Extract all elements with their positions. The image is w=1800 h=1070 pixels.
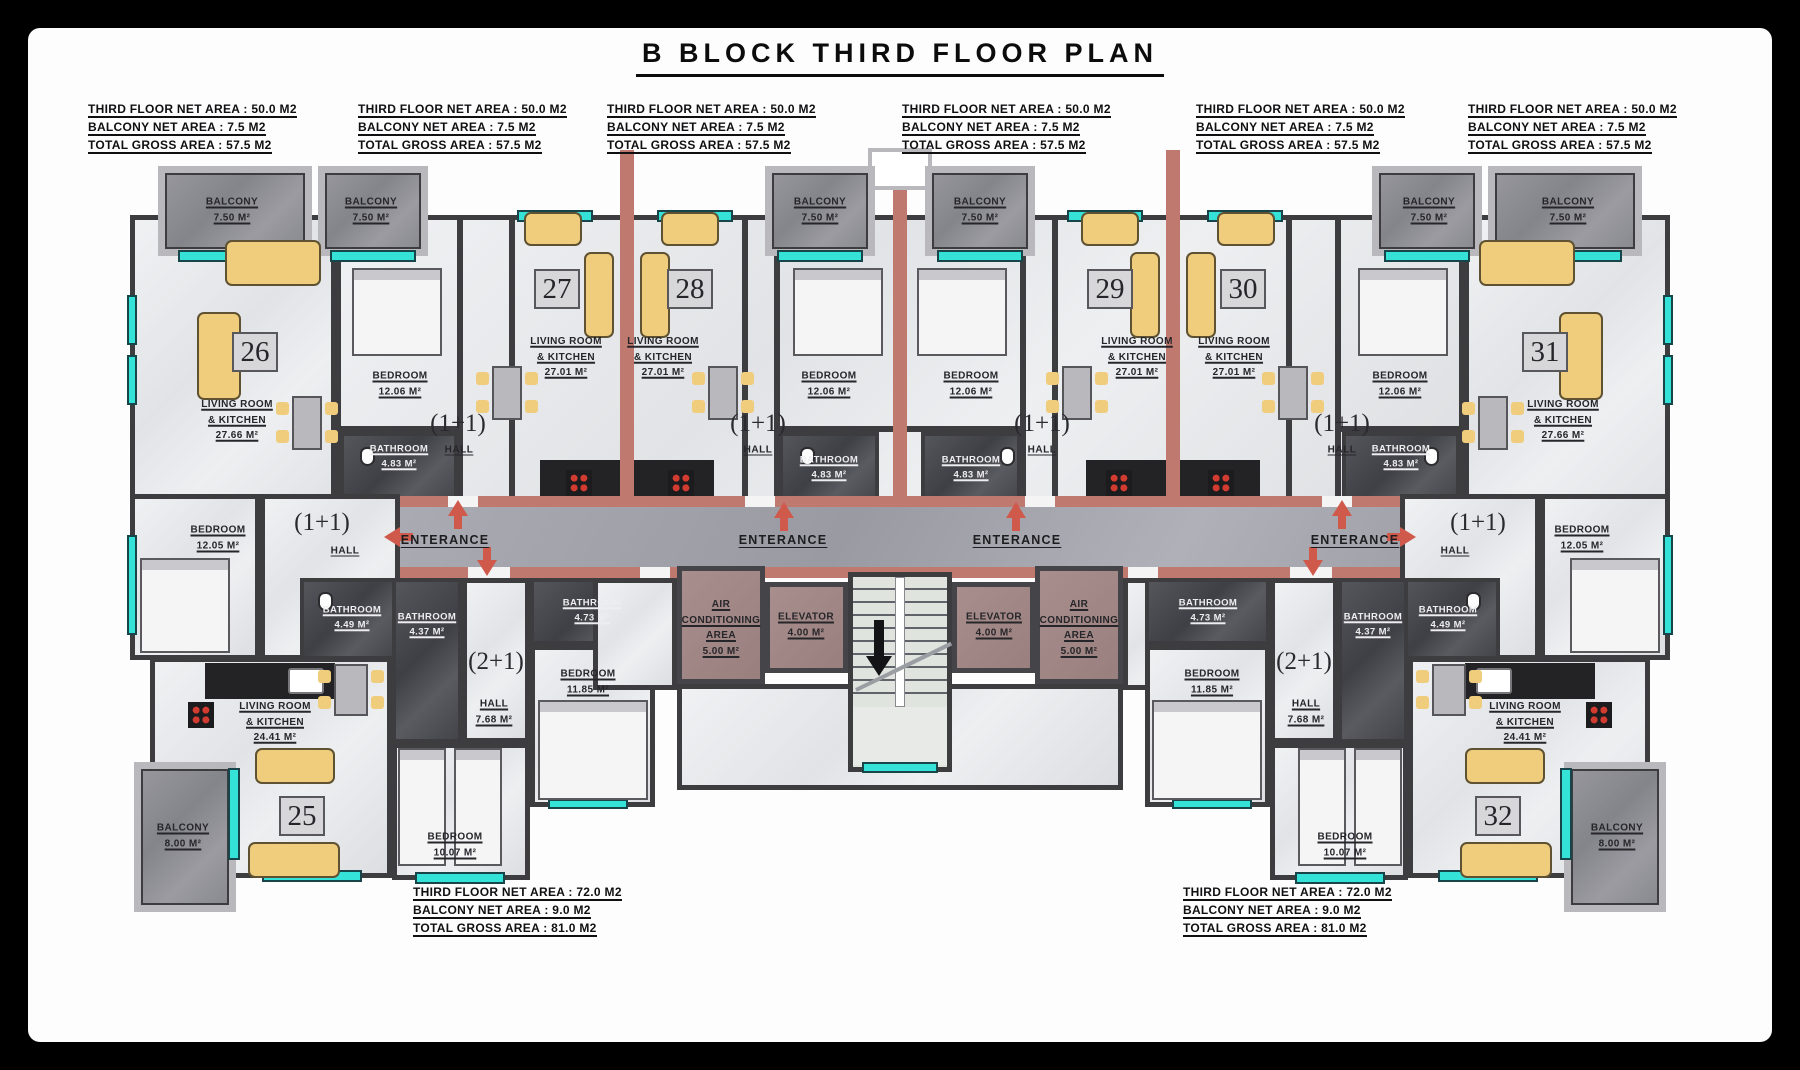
room-area: 11.85 M²: [560, 682, 615, 698]
room-name: BATHROOM: [1419, 603, 1477, 618]
sofa: [1479, 240, 1575, 286]
dining-table: [334, 664, 368, 716]
room-name: BATHROOM: [942, 453, 1000, 468]
room-area: 4.37 M²: [1344, 625, 1402, 640]
room-area: 4.83 M²: [370, 457, 428, 472]
gross-area: TOTAL GROSS AREA : 57.5 M2: [902, 139, 1086, 154]
dining-table: [1478, 396, 1508, 450]
room-name: BEDROOM: [560, 667, 615, 683]
door-gap: [640, 567, 670, 578]
bed: [793, 268, 883, 356]
stove-icon: [668, 470, 694, 496]
bedroom-label: BEDROOM12.05 M²: [190, 523, 245, 554]
window: [548, 799, 628, 809]
area-info-block: THIRD FLOOR NET AREA : 50.0 M2BALCONY NE…: [1468, 103, 1677, 157]
l2: & KITCHEN: [1527, 412, 1599, 428]
apartment-number-25: 25: [279, 796, 325, 836]
plan-stage: BALCONY7.50 M² BALCONY7.50 M² BALCONY7.5…: [0, 0, 1800, 1070]
l2: CONDITIONING: [1040, 613, 1119, 629]
room-area: 12.05 M²: [190, 538, 245, 554]
stove-icon: [1208, 470, 1234, 496]
area: 5.00 M²: [1040, 644, 1119, 660]
stove-icon: [1106, 470, 1132, 496]
bathroom-label: BATHROOM4.49 M²: [323, 603, 381, 632]
unit-type-label: (2+1): [468, 648, 524, 676]
bathroom-label: BATHROOM4.83 M²: [370, 442, 428, 471]
hall-label: HALL: [1328, 445, 1357, 456]
area-info-block: THIRD FLOOR NET AREA : 50.0 M2BALCONY NE…: [1196, 103, 1405, 157]
window: [1384, 250, 1470, 262]
balcony-label: BALCONY8.00 M²: [1591, 821, 1643, 852]
l1: LIVING ROOM: [201, 397, 273, 413]
bathroom-label: BATHROOM4.73 M²: [563, 596, 621, 625]
room-name: BATHROOM: [1179, 596, 1237, 611]
window: [1295, 872, 1385, 884]
stove-icon: [188, 702, 214, 728]
net-area: THIRD FLOOR NET AREA : 72.0 M2: [1183, 886, 1392, 901]
room-name: ELEVATOR: [778, 610, 834, 626]
apartment-number-26: 26: [232, 332, 278, 372]
hall-label: HALL: [744, 445, 773, 456]
l1: LIVING ROOM: [1527, 397, 1599, 413]
air-conditioning-label: AIRCONDITIONINGAREA5.00 M²: [682, 597, 761, 659]
l2: & KITCHEN: [530, 349, 602, 365]
l2: CONDITIONING: [682, 613, 761, 629]
l1: LIVING ROOM: [530, 334, 602, 350]
room-name: BEDROOM: [427, 830, 482, 846]
living-room-label: LIVING ROOM& KITCHEN27.01 M²: [530, 334, 602, 381]
bedroom-label: BEDROOM11.85 M²: [560, 667, 615, 698]
room-area: 12.06 M²: [1372, 384, 1427, 400]
hall-label: HALL7.68 M²: [476, 697, 513, 728]
sofa: [225, 240, 321, 286]
entrance-arrow-up-icon: [774, 501, 794, 531]
bathroom-label: BATHROOM4.49 M²: [1419, 603, 1477, 632]
chairs: [1046, 372, 1059, 385]
l2: & KITCHEN: [201, 412, 273, 428]
room-name: BEDROOM: [1317, 830, 1372, 846]
sofa: [640, 252, 670, 338]
balcony-label: BALCONY7.50 M²: [954, 195, 1006, 226]
window: [777, 250, 863, 262]
l2: & KITCHEN: [627, 349, 699, 365]
room-area: 12.06 M²: [943, 384, 998, 400]
gross-area: TOTAL GROSS AREA : 57.5 M2: [1196, 139, 1380, 154]
net-area: THIRD FLOOR NET AREA : 50.0 M2: [902, 103, 1111, 118]
gross-area: TOTAL GROSS AREA : 81.0 M2: [1183, 922, 1367, 937]
window: [330, 250, 416, 262]
apartment-number-29: 29: [1087, 269, 1133, 309]
party-wall: [620, 150, 634, 508]
unit-type-label: (1+1): [1014, 410, 1070, 438]
chairs: [276, 402, 289, 415]
balcony-area: BALCONY NET AREA : 9.0 M2: [413, 904, 591, 919]
bed: [538, 700, 648, 800]
sofa: [1130, 252, 1160, 338]
net-area: THIRD FLOOR NET AREA : 50.0 M2: [358, 103, 567, 118]
corridor-wall-top: [345, 496, 1455, 507]
l3: AREA: [1040, 628, 1119, 644]
enterance-label: ENTERANCE: [739, 533, 828, 547]
window: [127, 535, 137, 635]
bathroom1-apt32: [1338, 578, 1408, 743]
area-info-block: THIRD FLOOR NET AREA : 50.0 M2BALCONY NE…: [88, 103, 297, 157]
bedroom-label: BEDROOM12.06 M²: [943, 369, 998, 400]
balcony-label: BALCONY8.00 M²: [157, 821, 209, 852]
area-info-block: THIRD FLOOR NET AREA : 50.0 M2BALCONY NE…: [358, 103, 567, 157]
chairs: [476, 372, 489, 385]
unit-type-label: (1+1): [1314, 410, 1370, 438]
room-area: 4.83 M²: [942, 468, 1000, 483]
dining-table: [1432, 664, 1466, 716]
dining-table: [292, 396, 322, 450]
chairs: [318, 670, 331, 683]
l1: LIVING ROOM: [239, 699, 311, 715]
entrance-arrow-up-icon: [1332, 499, 1352, 529]
toilet-icon: [1000, 447, 1015, 466]
gross-area: TOTAL GROSS AREA : 57.5 M2: [1468, 139, 1652, 154]
bathroom-label: BATHROOM4.83 M²: [942, 453, 1000, 482]
room-name: BALCONY: [1591, 821, 1643, 837]
gross-area: TOTAL GROSS AREA : 57.5 M2: [607, 139, 791, 154]
bed: [1152, 700, 1262, 800]
area: 27.01 M²: [627, 365, 699, 381]
gross-area: TOTAL GROSS AREA : 57.5 M2: [88, 139, 272, 154]
sofa: [1460, 842, 1552, 878]
stair-rail: [895, 577, 905, 707]
entrance-arrow-down-icon: [477, 547, 497, 577]
bedroom-label: BEDROOM12.05 M²: [1554, 523, 1609, 554]
area: 5.00 M²: [682, 644, 761, 660]
bed: [140, 558, 230, 653]
area-info-block: THIRD FLOOR NET AREA : 50.0 M2BALCONY NE…: [607, 103, 816, 157]
room-name: BATHROOM: [800, 453, 858, 468]
apartment-number-27: 27: [534, 269, 580, 309]
l1: LIVING ROOM: [1489, 699, 1561, 715]
bedroom-label: BEDROOM10.07 M²: [1317, 830, 1372, 861]
window: [228, 768, 240, 860]
room-name: BEDROOM: [372, 369, 427, 385]
apartment-number-32: 32: [1475, 796, 1521, 836]
wall: [1286, 215, 1292, 508]
sofa: [1465, 748, 1545, 784]
l2: & KITCHEN: [1101, 349, 1173, 365]
entrance-arrow-down-icon: [1303, 547, 1323, 577]
room-area: 7.50 M²: [206, 210, 258, 226]
bathroom-label: BATHROOM4.73 M²: [1179, 596, 1237, 625]
room-area: 7.50 M²: [1403, 210, 1455, 226]
room-name: HALL: [476, 697, 513, 713]
chairs: [1462, 402, 1475, 415]
l3: AREA: [682, 628, 761, 644]
hall-label: HALL7.68 M²: [1288, 697, 1325, 728]
bedroom-label: BEDROOM12.06 M²: [1372, 369, 1427, 400]
window: [127, 295, 137, 345]
living-room-label: LIVING ROOM& KITCHEN27.01 M²: [1101, 334, 1173, 381]
l1: LIVING ROOM: [1198, 334, 1270, 350]
bedroom-label: BEDROOM12.06 M²: [801, 369, 856, 400]
bed: [917, 268, 1007, 356]
room-name: BALCONY: [1542, 195, 1594, 211]
room-area: 7.68 M²: [1288, 712, 1325, 728]
room-area: 4.49 M²: [1419, 618, 1477, 633]
room-area: 12.06 M²: [372, 384, 427, 400]
room-name: BALCONY: [206, 195, 258, 211]
apartment-number-31: 31: [1522, 332, 1568, 372]
room-name: BATHROOM: [323, 603, 381, 618]
area-info-block: THIRD FLOOR NET AREA : 72.0 M2BALCONY NE…: [413, 886, 622, 940]
living-room-label: LIVING ROOM& KITCHEN27.66 M²: [1527, 397, 1599, 444]
room-area: 7.50 M²: [794, 210, 846, 226]
net-area: THIRD FLOOR NET AREA : 72.0 M2: [413, 886, 622, 901]
room-name: BATHROOM: [398, 610, 456, 625]
bathroom1-apt25: [392, 578, 462, 743]
entrance-arrow-up-icon: [1006, 501, 1026, 531]
room-area: 4.83 M²: [800, 468, 858, 483]
balcony-label: BALCONY7.50 M²: [1542, 195, 1594, 226]
net-area: THIRD FLOOR NET AREA : 50.0 M2: [1468, 103, 1677, 118]
net-area: THIRD FLOOR NET AREA : 50.0 M2: [88, 103, 297, 118]
window: [1663, 355, 1673, 405]
corridor: [345, 505, 1455, 569]
party-wall: [1166, 150, 1180, 508]
room-area: 4.73 M²: [563, 611, 621, 626]
room-name: BALCONY: [1403, 195, 1455, 211]
area: 27.01 M²: [1198, 365, 1270, 381]
area: 27.66 M²: [201, 428, 273, 444]
room-name: BEDROOM: [190, 523, 245, 539]
balcony-area: BALCONY NET AREA : 7.5 M2: [902, 121, 1080, 136]
balcony-area: BALCONY NET AREA : 7.5 M2: [1468, 121, 1646, 136]
l2: & KITCHEN: [1198, 349, 1270, 365]
room-area: 7.68 M²: [476, 712, 513, 728]
window: [415, 872, 505, 884]
door-gap: [1128, 567, 1158, 578]
unit-type-label: (1+1): [430, 410, 486, 438]
door-gap: [1025, 496, 1055, 507]
room-name: BALCONY: [794, 195, 846, 211]
room-area: 8.00 M²: [1591, 836, 1643, 852]
room-name: BALCONY: [954, 195, 1006, 211]
sofa: [661, 212, 719, 246]
window: [1172, 799, 1252, 809]
l2: & KITCHEN: [1489, 714, 1561, 730]
room-area: 7.50 M²: [954, 210, 1006, 226]
chairs: [1416, 670, 1429, 683]
room-name: BEDROOM: [943, 369, 998, 385]
room-name: BEDROOM: [1372, 369, 1427, 385]
room-area: 4.49 M²: [323, 618, 381, 633]
balcony-area: BALCONY NET AREA : 7.5 M2: [1196, 121, 1374, 136]
unit-type-label: (1+1): [294, 509, 350, 537]
balcony-label: BALCONY7.50 M²: [1403, 195, 1455, 226]
room-area: 4.37 M²: [398, 625, 456, 640]
balcony-area: BALCONY NET AREA : 7.5 M2: [88, 121, 266, 136]
gross-area: TOTAL GROSS AREA : 81.0 M2: [413, 922, 597, 937]
balcony-label: BALCONY7.50 M²: [345, 195, 397, 226]
bed: [1570, 558, 1660, 653]
balcony-area: BALCONY NET AREA : 7.5 M2: [607, 121, 785, 136]
page-title: B BLOCK THIRD FLOOR PLAN: [636, 38, 1164, 77]
room-name: ELEVATOR: [966, 610, 1022, 626]
room-area: 12.06 M²: [801, 384, 856, 400]
wall: [1335, 215, 1341, 508]
bed: [352, 268, 442, 356]
dining-table: [492, 366, 522, 420]
bed: [1358, 268, 1448, 356]
l1: AIR: [1040, 597, 1119, 613]
room-area: 8.00 M²: [157, 836, 209, 852]
net-area: THIRD FLOOR NET AREA : 50.0 M2: [607, 103, 816, 118]
living-room-label: LIVING ROOM& KITCHEN24.41 M²: [1489, 699, 1561, 746]
balcony-area: BALCONY NET AREA : 9.0 M2: [1183, 904, 1361, 919]
room-area: 4.73 M²: [1179, 611, 1237, 626]
balcony-label: BALCONY7.50 M²: [206, 195, 258, 226]
area: 24.41 M²: [239, 730, 311, 746]
room-name: BATHROOM: [1372, 442, 1430, 457]
room-name: BALCONY: [157, 821, 209, 837]
living-room-label: LIVING ROOM& KITCHEN24.41 M²: [239, 699, 311, 746]
bathroom-label: BATHROOM4.37 M²: [398, 610, 456, 639]
area: 27.01 M²: [1101, 365, 1173, 381]
l1: AIR: [682, 597, 761, 613]
sofa: [524, 212, 582, 246]
balcony-area: BALCONY NET AREA : 7.5 M2: [358, 121, 536, 136]
bedroom-label: BEDROOM12.06 M²: [372, 369, 427, 400]
sofa: [255, 748, 335, 784]
room-area: 4.83 M²: [1372, 457, 1430, 472]
air-conditioning-label: AIRCONDITIONINGAREA5.00 M²: [1040, 597, 1119, 659]
room-name: HALL: [1288, 697, 1325, 713]
unit-type-label: (2+1): [1276, 648, 1332, 676]
area-info-block: THIRD FLOOR NET AREA : 50.0 M2BALCONY NE…: [902, 103, 1111, 157]
area: 24.41 M²: [1489, 730, 1561, 746]
stove-icon: [1586, 702, 1612, 728]
window: [1560, 768, 1572, 860]
sofa: [248, 842, 340, 878]
room-area: 10.07 M²: [1317, 845, 1372, 861]
room-name: BATHROOM: [1344, 610, 1402, 625]
bathroom-label: BATHROOM4.83 M²: [1372, 442, 1430, 471]
window: [127, 355, 137, 405]
room-name: BALCONY: [345, 195, 397, 211]
living-room-label: LIVING ROOM& KITCHEN27.01 M²: [1198, 334, 1270, 381]
elevator-label: ELEVATOR4.00 M²: [966, 610, 1022, 641]
hall-label: HALL: [1028, 445, 1057, 456]
room-area: 7.50 M²: [1542, 210, 1594, 226]
l1: LIVING ROOM: [1101, 334, 1173, 350]
hall-label: HALL: [445, 445, 474, 456]
bathroom-label: BATHROOM4.83 M²: [800, 453, 858, 482]
hall-label: HALL: [1441, 546, 1470, 557]
room-name: BEDROOM: [801, 369, 856, 385]
hall-label: HALL: [331, 546, 360, 557]
enterance-label: ENTERANCE: [401, 533, 490, 547]
wall: [509, 215, 515, 508]
sofa: [1186, 252, 1216, 338]
bedroom-label: BEDROOM10.07 M²: [427, 830, 482, 861]
room-area: 4.00 M²: [966, 625, 1022, 641]
room-area: 7.50 M²: [345, 210, 397, 226]
window: [937, 250, 1023, 262]
unit-type-label: (1+1): [1450, 509, 1506, 537]
stairs-down-arrow-icon: [866, 620, 892, 678]
entrance-arrow-up-icon: [448, 499, 468, 529]
apartment-number-30: 30: [1220, 269, 1266, 309]
room-name: BEDROOM: [1554, 523, 1609, 539]
sofa: [584, 252, 614, 338]
stair-landing: [853, 707, 947, 765]
wall: [742, 215, 748, 508]
area: 27.66 M²: [1527, 428, 1599, 444]
l2: & KITCHEN: [239, 714, 311, 730]
balcony-label: BALCONY7.50 M²: [794, 195, 846, 226]
elevator-label: ELEVATOR4.00 M²: [778, 610, 834, 641]
sofa: [1217, 212, 1275, 246]
living-room-label: LIVING ROOM& KITCHEN27.66 M²: [201, 397, 273, 444]
window: [1663, 295, 1673, 345]
room-area: 10.07 M²: [427, 845, 482, 861]
sink-icon: [1476, 668, 1512, 694]
living-room-label: LIVING ROOM& KITCHEN27.01 M²: [627, 334, 699, 381]
apartment-number-28: 28: [667, 269, 713, 309]
room-name: BEDROOM: [1184, 667, 1239, 683]
party-wall-center: [893, 186, 907, 508]
gross-area: TOTAL GROSS AREA : 57.5 M2: [358, 139, 542, 154]
unit-type-label: (1+1): [730, 410, 786, 438]
door-gap: [745, 496, 775, 507]
bedroom-label: BEDROOM11.85 M²: [1184, 667, 1239, 698]
room-area: 4.00 M²: [778, 625, 834, 641]
dining-table: [1278, 366, 1308, 420]
enterance-label: ENTERANCE: [1311, 533, 1400, 547]
room-area: 11.85 M²: [1184, 682, 1239, 698]
room-area: 12.05 M²: [1554, 538, 1609, 554]
room-name: BATHROOM: [370, 442, 428, 457]
window: [1663, 535, 1673, 635]
window: [862, 762, 938, 773]
l1: LIVING ROOM: [627, 334, 699, 350]
wall: [1052, 215, 1058, 508]
room-name: BATHROOM: [563, 596, 621, 611]
area-info-block: THIRD FLOOR NET AREA : 72.0 M2BALCONY NE…: [1183, 886, 1392, 940]
net-area: THIRD FLOOR NET AREA : 50.0 M2: [1196, 103, 1405, 118]
stove-icon: [566, 470, 592, 496]
bathroom-label: BATHROOM4.37 M²: [1344, 610, 1402, 639]
enterance-label: ENTERANCE: [973, 533, 1062, 547]
sofa: [1081, 212, 1139, 246]
area: 27.01 M²: [530, 365, 602, 381]
